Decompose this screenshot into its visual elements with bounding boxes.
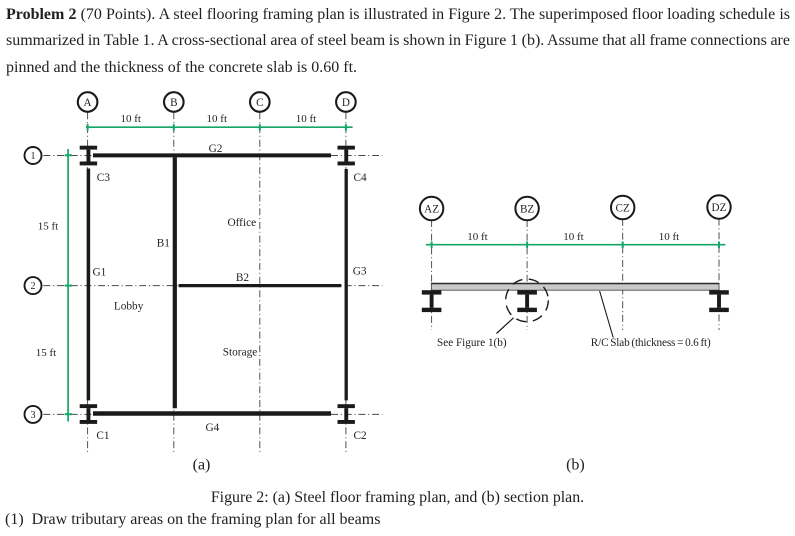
svg-text:C4: C4: [354, 172, 368, 184]
svg-text:C1: C1: [96, 430, 109, 442]
svg-text:C2: C2: [354, 430, 368, 442]
svg-text:BZ: BZ: [520, 204, 534, 216]
svg-text:(b): (b): [566, 457, 585, 474]
svg-text:AZ: AZ: [424, 204, 439, 216]
svg-text:C: C: [256, 97, 263, 109]
svg-text:1: 1: [31, 151, 36, 162]
svg-text:10 ft: 10 ft: [467, 231, 487, 243]
svg-text:R/C Slab (thickness = 0.6 ft): R/C Slab (thickness = 0.6 ft): [591, 337, 711, 349]
svg-text:B1: B1: [157, 237, 170, 249]
svg-text:(a): (a): [193, 457, 211, 474]
svg-text:G2: G2: [209, 143, 223, 155]
svg-text:Office: Office: [227, 217, 256, 229]
svg-text:G4: G4: [206, 422, 220, 434]
svg-text:10 ft: 10 ft: [207, 113, 227, 125]
svg-text:15 ft: 15 ft: [38, 221, 58, 233]
svg-text:B: B: [170, 97, 177, 109]
svg-text:Lobby: Lobby: [114, 300, 144, 312]
svg-text:CZ: CZ: [616, 203, 630, 215]
svg-text:15 ft: 15 ft: [36, 347, 56, 359]
svg-text:Storage: Storage: [223, 347, 258, 359]
svg-text:G1: G1: [93, 266, 107, 278]
svg-text:DZ: DZ: [712, 202, 727, 214]
svg-text:2: 2: [31, 281, 36, 292]
svg-text:A: A: [84, 97, 92, 109]
svg-text:B2: B2: [236, 272, 250, 284]
svg-text:10 ft: 10 ft: [296, 113, 316, 125]
svg-text:10 ft: 10 ft: [563, 231, 583, 243]
svg-text:3: 3: [31, 410, 36, 421]
svg-text:See Figure 1(b): See Figure 1(b): [437, 337, 507, 349]
svg-text:10 ft: 10 ft: [120, 113, 140, 125]
svg-text:10 ft: 10 ft: [659, 231, 679, 243]
svg-text:C3: C3: [97, 172, 111, 184]
svg-text:G3: G3: [353, 266, 367, 278]
svg-text:D: D: [342, 97, 350, 109]
